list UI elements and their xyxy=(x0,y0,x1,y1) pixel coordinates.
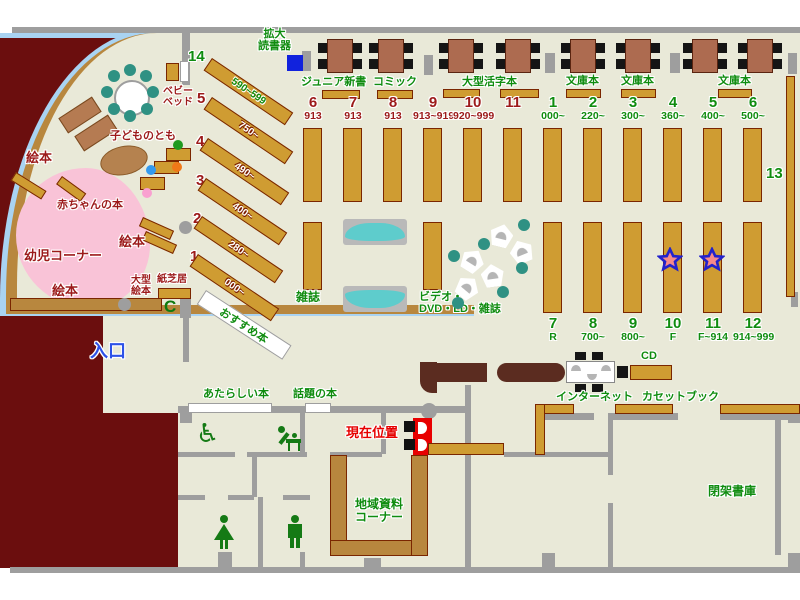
shelf-number-column: 9800~ xyxy=(613,316,653,343)
genre-bunko: 文庫本 xyxy=(718,75,751,87)
bookshelf xyxy=(423,128,442,202)
shelf xyxy=(720,404,800,414)
reading-table xyxy=(616,39,660,73)
chair xyxy=(141,103,153,115)
chair xyxy=(478,238,490,250)
cassette-book-label: カセットブック xyxy=(642,391,719,403)
regional-shelf xyxy=(411,455,428,556)
wall xyxy=(540,413,594,420)
bookshelf xyxy=(383,128,402,202)
woman-icon xyxy=(213,515,235,549)
new-books-label: あたらしい本 xyxy=(203,388,269,400)
pillar xyxy=(545,53,555,73)
baby-books-label: 赤ちゃんの本 xyxy=(57,199,123,211)
reading-table xyxy=(439,39,483,73)
baby-change-icon xyxy=(278,424,304,452)
chair xyxy=(124,64,136,76)
stacks-wall xyxy=(608,413,613,475)
cd-label: CD xyxy=(641,350,657,362)
large-ehon-label: 大型絵本 xyxy=(131,275,151,297)
wall xyxy=(465,385,471,568)
shelf-number-column: 3300~ xyxy=(613,95,653,122)
wall xyxy=(178,452,235,457)
kamishibai-label: 紙芝居 xyxy=(157,274,187,285)
genre-large-print: 大型活字本 xyxy=(462,76,517,88)
bookshelf xyxy=(743,222,762,313)
magnifier-label: 拡大読書器 xyxy=(258,28,291,52)
shelf xyxy=(535,404,545,455)
video-shelf xyxy=(423,222,442,290)
wall xyxy=(12,27,800,33)
library-floor-map: 拡大読書器 ジュニア新書 コミック 大型活字本 文庫本 文庫本 文庫本 6913… xyxy=(0,0,800,600)
shelf-number-column: 7R xyxy=(533,316,573,343)
adult-shelf-numbers-bottom: 7R8700~9800~10F11F~91412914~999 xyxy=(533,316,773,343)
star-marker-icon xyxy=(657,247,683,273)
chair xyxy=(108,70,120,82)
children-area-bottom-wall xyxy=(10,298,162,311)
service-counter xyxy=(420,362,487,393)
reading-table xyxy=(496,39,540,73)
service-counter xyxy=(497,363,565,382)
shelf-number-column: 7913 xyxy=(333,95,373,122)
pillar xyxy=(670,53,680,73)
wall xyxy=(283,495,310,500)
shelf-number-column: 6913 xyxy=(293,95,333,122)
bookshelf xyxy=(543,128,562,202)
ehon-label: 絵本 xyxy=(26,151,52,165)
chair xyxy=(592,352,603,360)
new-books-shelf xyxy=(188,403,272,413)
shelf xyxy=(428,443,504,455)
chair xyxy=(108,103,120,115)
pillar xyxy=(118,298,131,311)
shelf-number-column: 2220~ xyxy=(573,95,613,122)
regional-corner-label: 地域資料コーナー xyxy=(350,498,408,524)
chair xyxy=(124,110,136,122)
wall xyxy=(228,495,254,500)
baby-bed-label: ベビーベッド xyxy=(163,86,193,108)
pillar xyxy=(218,552,232,568)
shelf xyxy=(615,404,673,414)
genre-bunko: 文庫本 xyxy=(621,75,654,87)
reading-table xyxy=(738,39,782,73)
bookshelf xyxy=(543,222,562,313)
wall xyxy=(300,552,305,568)
bookshelf xyxy=(623,128,642,202)
star-marker-icon xyxy=(699,247,725,273)
shelf-number-column: 8913 xyxy=(373,95,413,122)
reading-table xyxy=(318,39,362,73)
bookshelf-13 xyxy=(786,76,795,297)
magazine-shelf xyxy=(303,222,322,290)
bookshelf xyxy=(703,128,722,202)
infant-corner-label: 幼児コーナー xyxy=(24,249,102,263)
genre-comic: コミック xyxy=(373,76,417,88)
pillar xyxy=(179,221,192,234)
bookshelf xyxy=(743,128,762,202)
floor-cushion xyxy=(172,162,182,172)
bench xyxy=(343,219,407,245)
chair xyxy=(617,366,628,378)
wall xyxy=(504,452,608,457)
bookshelf xyxy=(343,128,362,202)
pillar xyxy=(788,53,797,74)
wall-bottom xyxy=(10,567,800,573)
shelf-number: 14 xyxy=(188,48,205,65)
ehon-label: 絵本 xyxy=(119,235,145,249)
shelf-number-column: 12914~999 xyxy=(733,316,773,343)
pillar xyxy=(421,403,437,419)
wall xyxy=(775,420,781,555)
wall xyxy=(612,413,678,420)
shelf-number-column: 8700~ xyxy=(573,316,613,343)
chair xyxy=(497,286,509,298)
internet-table xyxy=(566,361,615,383)
wall xyxy=(178,495,205,500)
reading-table xyxy=(683,39,727,73)
bookshelf xyxy=(583,222,602,313)
magnifier-device-icon xyxy=(287,55,303,71)
bookshelf xyxy=(463,128,482,202)
pillar xyxy=(302,51,311,71)
chair xyxy=(518,219,530,231)
shelf-number: 5 xyxy=(197,90,205,107)
bookshelf xyxy=(623,222,642,313)
bench xyxy=(343,286,407,312)
shelf-number-column: 5400~ xyxy=(693,95,733,122)
magazine-label: 雑誌 xyxy=(296,291,320,304)
topic-books-shelf xyxy=(305,403,331,413)
pillar xyxy=(180,299,191,318)
chair xyxy=(516,262,528,274)
public-phone-icon: C xyxy=(164,298,176,317)
wheelchair-icon: ♿ xyxy=(196,420,219,449)
shelf-number-column: 11F~914 xyxy=(693,316,733,343)
baby-bed xyxy=(166,63,179,81)
shelf-number-column: 11 xyxy=(493,95,533,122)
chair xyxy=(448,250,460,262)
bookshelf xyxy=(503,128,522,202)
floor-cushion xyxy=(142,188,152,198)
pillar xyxy=(542,553,555,568)
adult-shelf-numbers-top: 1000~2220~3300~4360~5400~6500~ xyxy=(533,95,773,122)
pillar xyxy=(788,553,800,568)
chair xyxy=(101,86,113,98)
entrance-label: 入口 xyxy=(90,342,126,362)
shelf-13-number: 13 xyxy=(766,166,783,183)
wall xyxy=(258,497,263,568)
reading-table xyxy=(561,39,605,73)
ehon-label: 絵本 xyxy=(52,284,78,298)
kodomonotomo-label: 子どものとも xyxy=(110,130,176,142)
current-location-label: 現在位置 xyxy=(346,426,398,440)
shelf-number-column: 10F xyxy=(653,316,693,343)
bookshelf xyxy=(663,128,682,202)
wall xyxy=(252,453,257,497)
man-icon xyxy=(285,515,305,549)
children-shelf-numbers: 6913791389139913~91910920~99911 xyxy=(293,95,533,122)
bookshelf xyxy=(303,128,322,202)
shelf-number-column: 10920~999 xyxy=(453,95,493,122)
chair xyxy=(575,352,586,360)
genre-junior-shinsho: ジュニア新書 xyxy=(301,76,366,88)
internet-label: インターネット xyxy=(556,391,633,403)
corridor-wall xyxy=(183,312,189,362)
closed-stacks-label: 閉架書庫 xyxy=(708,485,756,498)
shelf-number-column: 1000~ xyxy=(533,95,573,122)
shelf-number-column: 6500~ xyxy=(733,95,773,122)
bookshelf xyxy=(583,128,602,202)
reading-table xyxy=(369,39,413,73)
cd-shelf xyxy=(630,365,672,380)
pillar xyxy=(424,55,433,75)
shelf-number-column: 4360~ xyxy=(653,95,693,122)
chair xyxy=(140,70,152,82)
stacks-wall xyxy=(608,503,613,568)
topic-books-label: 話題の本 xyxy=(293,388,337,400)
genre-bunko: 文庫本 xyxy=(566,75,599,87)
shelf-number-column: 9913~919 xyxy=(413,95,453,122)
shelf xyxy=(540,404,574,414)
chair xyxy=(452,297,464,309)
chair xyxy=(147,86,159,98)
floor-cushion xyxy=(146,165,156,175)
